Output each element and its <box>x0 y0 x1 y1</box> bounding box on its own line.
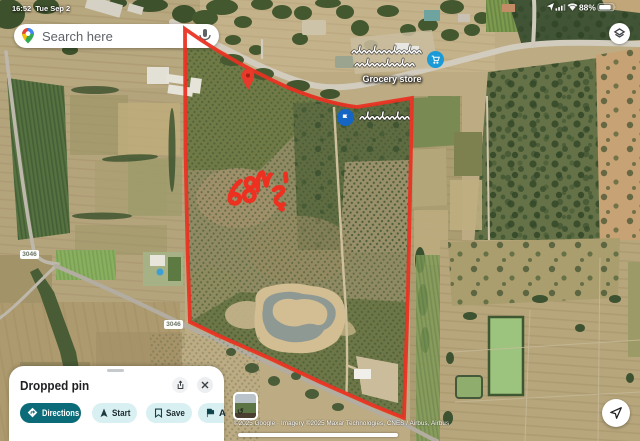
svg-text:88%: 88% <box>579 3 596 12</box>
